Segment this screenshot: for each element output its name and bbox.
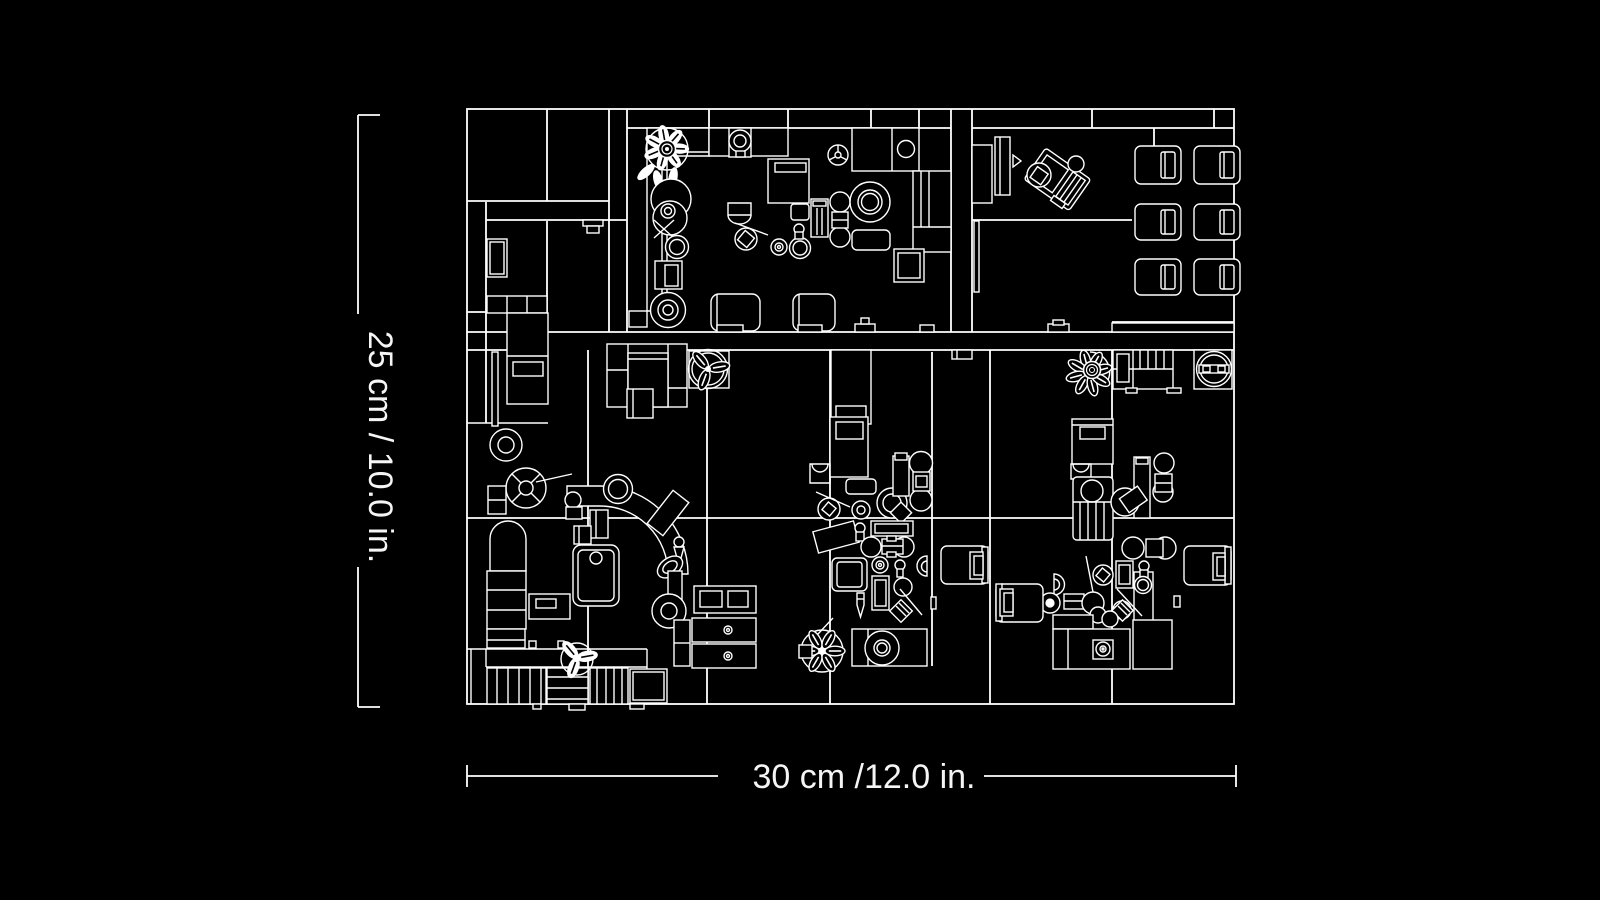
- svg-text:25 cm / 10.0 in.: 25 cm / 10.0 in.: [361, 331, 399, 563]
- svg-text:30 cm /12.0 in.: 30 cm /12.0 in.: [752, 758, 975, 796]
